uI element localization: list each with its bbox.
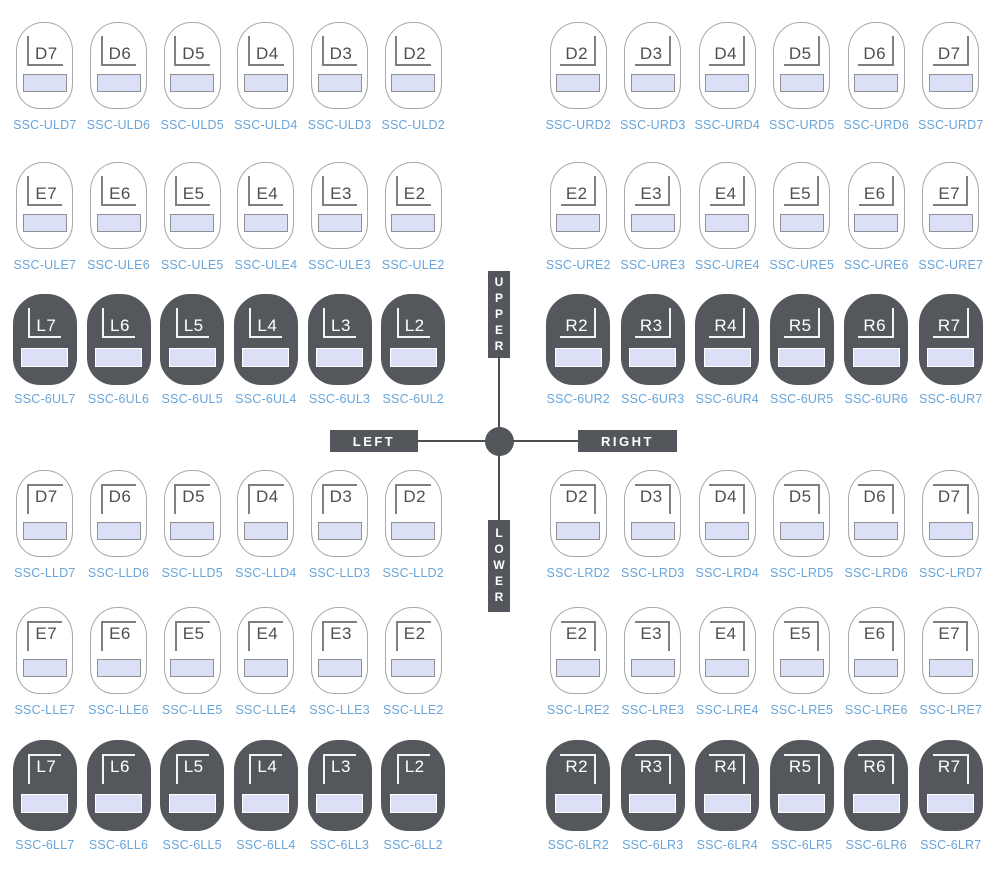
crown-band xyxy=(704,348,751,367)
product-code[interactable]: SSC-6UR6 xyxy=(845,392,908,406)
tooth-ssc-lre3[interactable]: E3 xyxy=(624,607,681,694)
product-code[interactable]: SSC-ULD6 xyxy=(87,118,150,132)
tooth-label: E6 xyxy=(101,621,136,651)
tooth-label: E5 xyxy=(784,621,819,651)
group-lower-right-6: R2SSC-6LR2R3SSC-6LR3R4SSC-6LR4R5SSC-6LR5… xyxy=(541,740,988,852)
tooth-label: D5 xyxy=(784,36,820,66)
tooth-cell: D5SSC-LRD5 xyxy=(765,470,840,580)
crown-band xyxy=(318,522,362,540)
tooth-ssc-6lr4[interactable]: R4 xyxy=(695,740,759,831)
crown-band xyxy=(629,348,676,367)
product-code[interactable]: SSC-ULD4 xyxy=(234,118,297,132)
product-code[interactable]: SSC-ULD5 xyxy=(160,118,223,132)
tooth-cell: D5SSC-URD5 xyxy=(765,22,840,132)
ssc-selection-chart: D7SSC-ULD7D6SSC-ULD6D5SSC-ULD5D4SSC-ULD4… xyxy=(0,0,1000,877)
product-code[interactable]: SSC-6UR3 xyxy=(621,392,684,406)
tooth-ssc-ure2[interactable]: E2 xyxy=(550,162,607,249)
product-code[interactable]: SSC-LLD2 xyxy=(383,566,444,580)
tooth-ssc-ule3[interactable]: E3 xyxy=(311,162,368,249)
axis-label-upper: UPPER xyxy=(488,271,510,358)
tooth-cell: E2SSC-LLE2 xyxy=(376,607,450,717)
crown-band xyxy=(780,214,824,232)
tooth-label: D6 xyxy=(858,36,894,66)
tooth-cell: D5SSC-ULD5 xyxy=(155,22,229,132)
crown-band xyxy=(556,74,600,92)
product-code[interactable]: SSC-LLD3 xyxy=(309,566,370,580)
tooth-cell: E2SSC-LRE2 xyxy=(541,607,616,717)
tooth-ssc-6lr7[interactable]: R7 xyxy=(919,740,983,831)
tooth-ssc-6ll5[interactable]: L5 xyxy=(160,740,224,831)
tooth-cell: E6SSC-ULE6 xyxy=(82,162,156,272)
tooth-cell: D7SSC-LRD7 xyxy=(914,470,989,580)
tooth-cell: R5SSC-6LR5 xyxy=(765,740,840,852)
product-code[interactable]: SSC-LRD2 xyxy=(547,566,610,580)
crown-band xyxy=(778,794,825,813)
tooth-ssc-lle4[interactable]: E4 xyxy=(237,607,294,694)
tooth-ssc-lle6[interactable]: E6 xyxy=(90,607,147,694)
tooth-cell: R2SSC-6LR2 xyxy=(541,740,616,852)
product-code[interactable]: SSC-LRE7 xyxy=(919,703,982,717)
tooth-label: D4 xyxy=(709,36,745,66)
product-code[interactable]: SSC-ULD3 xyxy=(308,118,371,132)
tooth-ssc-uld3[interactable]: D3 xyxy=(311,22,368,109)
tooth-ssc-lrd4[interactable]: D4 xyxy=(699,470,756,557)
axis-label-left: LEFT xyxy=(330,430,418,452)
tooth-cell: E4SSC-URE4 xyxy=(690,162,765,272)
tooth-cell: L5SSC-6LL5 xyxy=(155,740,229,852)
tooth-cell: D3SSC-LRD3 xyxy=(616,470,691,580)
tooth-ssc-6ll4[interactable]: L4 xyxy=(234,740,298,831)
tooth-cell: E6SSC-LLE6 xyxy=(82,607,156,717)
crown-band xyxy=(927,794,974,813)
tooth-ssc-uld2[interactable]: D2 xyxy=(385,22,442,109)
product-code[interactable]: SSC-6LL5 xyxy=(163,838,222,852)
tooth-cell: E5SSC-LRE5 xyxy=(765,607,840,717)
tooth-label: D5 xyxy=(784,484,820,514)
tooth-label: E2 xyxy=(561,621,596,651)
crown-band xyxy=(631,214,675,232)
product-code[interactable]: SSC-LRE6 xyxy=(845,703,908,717)
product-code[interactable]: SSC-ULE7 xyxy=(13,258,76,272)
product-code[interactable]: SSC-6LR2 xyxy=(548,838,609,852)
group-upper-left-6: L7SSC-6UL7L6SSC-6UL6L5SSC-6UL5L4SSC-6UL4… xyxy=(8,294,450,406)
crown-band xyxy=(23,659,67,677)
tooth-label: E3 xyxy=(322,621,357,651)
tooth-ssc-6ur3[interactable]: R3 xyxy=(621,294,685,385)
group-upper-left-e: E7SSC-ULE7E6SSC-ULE6E5SSC-ULE5E4SSC-ULE4… xyxy=(8,162,450,272)
product-code[interactable]: SSC-6LR3 xyxy=(622,838,683,852)
tooth-label: D7 xyxy=(27,484,63,514)
product-code[interactable]: SSC-LLE6 xyxy=(88,703,149,717)
tooth-ssc-uld5[interactable]: D5 xyxy=(164,22,221,109)
axis-line-right xyxy=(512,440,579,442)
product-code[interactable]: SSC-6UL4 xyxy=(235,392,296,406)
tooth-ssc-lrd5[interactable]: D5 xyxy=(773,470,830,557)
tooth-cell: D6SSC-ULD6 xyxy=(82,22,156,132)
crown-band xyxy=(316,348,363,367)
tooth-ssc-urd4[interactable]: D4 xyxy=(699,22,756,109)
crown-band xyxy=(629,794,676,813)
tooth-ssc-ure7[interactable]: E7 xyxy=(922,162,979,249)
product-code[interactable]: SSC-ULE3 xyxy=(308,258,371,272)
product-code[interactable]: SSC-ULD7 xyxy=(13,118,76,132)
product-code[interactable]: SSC-URD7 xyxy=(918,118,984,132)
crown-band xyxy=(95,794,142,813)
tooth-ssc-lld5[interactable]: D5 xyxy=(164,470,221,557)
product-code[interactable]: SSC-LLE4 xyxy=(236,703,297,717)
tooth-ssc-6ll3[interactable]: L3 xyxy=(308,740,372,831)
tooth-cell: D7SSC-LLD7 xyxy=(8,470,82,580)
tooth-ssc-ule6[interactable]: E6 xyxy=(90,162,147,249)
crown-band xyxy=(853,348,900,367)
crown-band xyxy=(23,522,67,540)
product-code[interactable]: SSC-LRE3 xyxy=(621,703,684,717)
product-code[interactable]: SSC-LLD7 xyxy=(14,566,75,580)
tooth-cell: L2SSC-6LL2 xyxy=(376,740,450,852)
product-code[interactable]: SSC-ULE5 xyxy=(161,258,224,272)
tooth-cell: D4SSC-LRD4 xyxy=(690,470,765,580)
tooth-ssc-6ul2[interactable]: L2 xyxy=(381,294,445,385)
tooth-label: E5 xyxy=(784,176,819,206)
tooth-cell: R4SSC-6UR4 xyxy=(690,294,765,406)
product-code[interactable]: SSC-URE7 xyxy=(918,258,983,272)
tooth-ssc-ure3[interactable]: E3 xyxy=(624,162,681,249)
tooth-ssc-lrd3[interactable]: D3 xyxy=(624,470,681,557)
tooth-label: D2 xyxy=(560,36,596,66)
tooth-ssc-6ll7[interactable]: L7 xyxy=(13,740,77,831)
product-code[interactable]: SSC-6UR4 xyxy=(696,392,759,406)
tooth-ssc-ule4[interactable]: E4 xyxy=(237,162,294,249)
tooth-cell: L7SSC-6LL7 xyxy=(8,740,82,852)
product-code[interactable]: SSC-LLD6 xyxy=(88,566,149,580)
tooth-label: E2 xyxy=(396,621,431,651)
tooth-ssc-ure6[interactable]: E6 xyxy=(848,162,905,249)
axis-label-right: RIGHT xyxy=(578,430,677,452)
crown-band xyxy=(778,348,825,367)
product-code[interactable]: SSC-6LL7 xyxy=(15,838,74,852)
tooth-label: R6 xyxy=(858,308,894,338)
product-code[interactable]: SSC-LRE2 xyxy=(547,703,610,717)
product-code[interactable]: SSC-LLE2 xyxy=(383,703,444,717)
tooth-ssc-6ul6[interactable]: L6 xyxy=(87,294,151,385)
tooth-ssc-lre6[interactable]: E6 xyxy=(848,607,905,694)
crown-band xyxy=(780,659,824,677)
axis-line-lower xyxy=(498,454,500,521)
tooth-ssc-lld7[interactable]: D7 xyxy=(16,470,73,557)
crown-band xyxy=(391,522,435,540)
tooth-ssc-urd2[interactable]: D2 xyxy=(550,22,607,109)
tooth-ssc-lld6[interactable]: D6 xyxy=(90,470,147,557)
product-code[interactable]: SSC-URD3 xyxy=(620,118,686,132)
product-code[interactable]: SSC-LLD4 xyxy=(235,566,296,580)
tooth-label: R6 xyxy=(858,754,894,784)
product-code[interactable]: SSC-LRD4 xyxy=(696,566,759,580)
group-lower-right-e: E2SSC-LRE2E3SSC-LRE3E4SSC-LRE4E5SSC-LRE5… xyxy=(541,607,988,717)
tooth-ssc-ule7[interactable]: E7 xyxy=(16,162,73,249)
crown-band xyxy=(95,348,142,367)
crown-band xyxy=(21,348,68,367)
product-code[interactable]: SSC-LRE5 xyxy=(770,703,833,717)
crown-band xyxy=(169,794,216,813)
tooth-ssc-6lr6[interactable]: R6 xyxy=(844,740,908,831)
tooth-ssc-lle5[interactable]: E5 xyxy=(164,607,221,694)
product-code[interactable]: SSC-LRD3 xyxy=(621,566,684,580)
tooth-ssc-ule2[interactable]: E2 xyxy=(385,162,442,249)
tooth-cell: R7SSC-6UR7 xyxy=(914,294,989,406)
group-lower-left-6: L7SSC-6LL7L6SSC-6LL6L5SSC-6LL5L4SSC-6LL4… xyxy=(8,740,450,852)
tooth-ssc-lld4[interactable]: D4 xyxy=(237,470,294,557)
crown-band xyxy=(97,522,141,540)
tooth-ssc-6ul7[interactable]: L7 xyxy=(13,294,77,385)
tooth-label: D4 xyxy=(709,484,745,514)
product-code[interactable]: SSC-URD2 xyxy=(546,118,612,132)
tooth-label: L4 xyxy=(249,308,282,338)
tooth-label: L2 xyxy=(397,754,430,784)
tooth-label: D7 xyxy=(933,484,969,514)
tooth-ssc-lld2[interactable]: D2 xyxy=(385,470,442,557)
tooth-cell: D6SSC-URD6 xyxy=(839,22,914,132)
tooth-cell: R6SSC-6LR6 xyxy=(839,740,914,852)
tooth-ssc-lre2[interactable]: E2 xyxy=(550,607,607,694)
tooth-ssc-6ul5[interactable]: L5 xyxy=(160,294,224,385)
product-code[interactable]: SSC-6UL3 xyxy=(309,392,370,406)
tooth-ssc-6ur6[interactable]: R6 xyxy=(844,294,908,385)
tooth-ssc-urd7[interactable]: D7 xyxy=(922,22,979,109)
tooth-label: R7 xyxy=(933,308,969,338)
tooth-label: D3 xyxy=(635,36,671,66)
tooth-ssc-lrd6[interactable]: D6 xyxy=(848,470,905,557)
crown-band xyxy=(242,348,289,367)
product-code[interactable]: SSC-LLE5 xyxy=(162,703,223,717)
product-code[interactable]: SSC-6LL2 xyxy=(384,838,443,852)
tooth-cell: L3SSC-6LL3 xyxy=(303,740,377,852)
tooth-label: D6 xyxy=(101,484,137,514)
tooth-label: E5 xyxy=(175,621,210,651)
tooth-ssc-6ur7[interactable]: R7 xyxy=(919,294,983,385)
tooth-cell: R4SSC-6LR4 xyxy=(690,740,765,852)
tooth-ssc-ure4[interactable]: E4 xyxy=(699,162,756,249)
tooth-ssc-6lr5[interactable]: R5 xyxy=(770,740,834,831)
tooth-label: R5 xyxy=(784,754,820,784)
group-lower-left-e: E7SSC-LLE7E6SSC-LLE6E5SSC-LLE5E4SSC-LLE4… xyxy=(8,607,450,717)
tooth-cell: E3SSC-URE3 xyxy=(616,162,691,272)
tooth-label: R2 xyxy=(560,754,596,784)
tooth-ssc-lle7[interactable]: E7 xyxy=(16,607,73,694)
tooth-cell: E5SSC-ULE5 xyxy=(155,162,229,272)
crown-band xyxy=(318,659,362,677)
tooth-label: E3 xyxy=(635,176,670,206)
tooth-label: D3 xyxy=(322,484,358,514)
tooth-cell: E4SSC-LRE4 xyxy=(690,607,765,717)
crown-band xyxy=(705,74,749,92)
tooth-cell: D7SSC-ULD7 xyxy=(8,22,82,132)
tooth-cell: L6SSC-6UL6 xyxy=(82,294,156,406)
product-code[interactable]: SSC-URE2 xyxy=(546,258,611,272)
product-code[interactable]: SSC-URD5 xyxy=(769,118,835,132)
tooth-ssc-6ur2[interactable]: R2 xyxy=(546,294,610,385)
crown-band xyxy=(23,214,67,232)
product-code[interactable]: SSC-URE5 xyxy=(769,258,834,272)
product-code[interactable]: SSC-URD4 xyxy=(695,118,761,132)
tooth-cell: D4SSC-LLD4 xyxy=(229,470,303,580)
group-upper-left-d: D7SSC-ULD7D6SSC-ULD6D5SSC-ULD5D4SSC-ULD4… xyxy=(8,22,450,132)
crown-band xyxy=(391,74,435,92)
tooth-label: L3 xyxy=(323,308,356,338)
tooth-cell: D4SSC-ULD4 xyxy=(229,22,303,132)
tooth-ssc-uld6[interactable]: D6 xyxy=(90,22,147,109)
tooth-cell: E3SSC-ULE3 xyxy=(303,162,377,272)
tooth-ssc-urd5[interactable]: D5 xyxy=(773,22,830,109)
product-code[interactable]: SSC-LRD6 xyxy=(845,566,908,580)
tooth-ssc-6ur5[interactable]: R5 xyxy=(770,294,834,385)
product-code[interactable]: SSC-6LL4 xyxy=(236,838,295,852)
axis-center-dot xyxy=(485,427,514,456)
product-code[interactable]: SSC-URE3 xyxy=(620,258,685,272)
product-code[interactable]: SSC-6LL6 xyxy=(89,838,148,852)
tooth-ssc-lre7[interactable]: E7 xyxy=(922,607,979,694)
tooth-ssc-urd6[interactable]: D6 xyxy=(848,22,905,109)
tooth-cell: D2SSC-LLD2 xyxy=(376,470,450,580)
tooth-ssc-lre5[interactable]: E5 xyxy=(773,607,830,694)
tooth-label: R3 xyxy=(635,308,671,338)
tooth-ssc-urd3[interactable]: D3 xyxy=(624,22,681,109)
crown-band xyxy=(318,74,362,92)
crown-band xyxy=(555,348,602,367)
crown-band xyxy=(390,794,437,813)
tooth-label: D2 xyxy=(395,484,431,514)
tooth-label: D5 xyxy=(174,484,210,514)
product-code[interactable]: SSC-URE4 xyxy=(695,258,760,272)
crown-band xyxy=(555,794,602,813)
tooth-ssc-uld7[interactable]: D7 xyxy=(16,22,73,109)
tooth-ssc-lre4[interactable]: E4 xyxy=(699,607,756,694)
tooth-cell: E7SSC-URE7 xyxy=(914,162,989,272)
product-code[interactable]: SSC-6LR7 xyxy=(920,838,981,852)
tooth-ssc-6ll2[interactable]: L2 xyxy=(381,740,445,831)
crown-band xyxy=(21,794,68,813)
crown-band xyxy=(97,74,141,92)
product-code[interactable]: SSC-ULD2 xyxy=(381,118,444,132)
tooth-ssc-lrd7[interactable]: D7 xyxy=(922,470,979,557)
crown-band xyxy=(170,522,214,540)
crown-band xyxy=(631,522,675,540)
tooth-ssc-lle3[interactable]: E3 xyxy=(311,607,368,694)
tooth-ssc-6ul3[interactable]: L3 xyxy=(308,294,372,385)
tooth-ssc-6ll6[interactable]: L6 xyxy=(87,740,151,831)
tooth-cell: E5SSC-LLE5 xyxy=(155,607,229,717)
product-code[interactable]: SSC-6LR4 xyxy=(697,838,758,852)
product-code[interactable]: SSC-LRD5 xyxy=(770,566,833,580)
crown-band xyxy=(929,214,973,232)
tooth-label: E4 xyxy=(710,621,745,651)
crown-band xyxy=(242,794,289,813)
tooth-label: E2 xyxy=(561,176,596,206)
tooth-cell: D6SSC-LLD6 xyxy=(82,470,156,580)
tooth-label: E3 xyxy=(322,176,357,206)
product-code[interactable]: SSC-6LL3 xyxy=(310,838,369,852)
product-code[interactable]: SSC-6LR5 xyxy=(771,838,832,852)
tooth-ssc-6ul4[interactable]: L4 xyxy=(234,294,298,385)
product-code[interactable]: SSC-6UL7 xyxy=(14,392,75,406)
group-lower-left-d: D7SSC-LLD7D6SSC-LLD6D5SSC-LLD5D4SSC-LLD4… xyxy=(8,470,450,580)
product-code[interactable]: SSC-LLE7 xyxy=(15,703,76,717)
tooth-cell: D5SSC-LLD5 xyxy=(155,470,229,580)
crown-band xyxy=(244,214,288,232)
product-code[interactable]: SSC-6UR7 xyxy=(919,392,982,406)
tooth-ssc-ule5[interactable]: E5 xyxy=(164,162,221,249)
tooth-ssc-lld3[interactable]: D3 xyxy=(311,470,368,557)
crown-band xyxy=(390,348,437,367)
tooth-label: D6 xyxy=(858,484,894,514)
tooth-ssc-6lr3[interactable]: R3 xyxy=(621,740,685,831)
product-code[interactable]: SSC-6UL5 xyxy=(162,392,223,406)
product-code[interactable]: SSC-LRE4 xyxy=(696,703,759,717)
product-code[interactable]: SSC-URE6 xyxy=(844,258,909,272)
tooth-label: L6 xyxy=(102,754,135,784)
product-code[interactable]: SSC-LLE3 xyxy=(309,703,370,717)
tooth-ssc-ure5[interactable]: E5 xyxy=(773,162,830,249)
tooth-cell: R5SSC-6UR5 xyxy=(765,294,840,406)
crown-band xyxy=(244,659,288,677)
tooth-label: R5 xyxy=(784,308,820,338)
crown-band xyxy=(705,214,749,232)
tooth-ssc-lrd2[interactable]: D2 xyxy=(550,470,607,557)
tooth-cell: L7SSC-6UL7 xyxy=(8,294,82,406)
tooth-ssc-6ur4[interactable]: R4 xyxy=(695,294,759,385)
tooth-label: E6 xyxy=(859,176,894,206)
tooth-label: E3 xyxy=(635,621,670,651)
crown-band xyxy=(556,214,600,232)
product-code[interactable]: SSC-URD6 xyxy=(844,118,910,132)
product-code[interactable]: SSC-ULE4 xyxy=(234,258,297,272)
product-code[interactable]: SSC-6UR2 xyxy=(547,392,610,406)
tooth-label: L7 xyxy=(28,308,61,338)
tooth-label: D2 xyxy=(395,36,431,66)
tooth-cell: L4SSC-6UL4 xyxy=(229,294,303,406)
product-code[interactable]: SSC-LLD5 xyxy=(162,566,223,580)
crown-band xyxy=(705,659,749,677)
tooth-cell: L5SSC-6UL5 xyxy=(155,294,229,406)
tooth-label: L6 xyxy=(102,308,135,338)
tooth-ssc-6lr2[interactable]: R2 xyxy=(546,740,610,831)
crown-band xyxy=(705,522,749,540)
product-code[interactable]: SSC-6UL6 xyxy=(88,392,149,406)
tooth-ssc-uld4[interactable]: D4 xyxy=(237,22,294,109)
tooth-label: D6 xyxy=(101,36,137,66)
axis-line-left xyxy=(417,440,486,442)
tooth-label: D2 xyxy=(560,484,596,514)
crown-band xyxy=(97,214,141,232)
product-code[interactable]: SSC-ULE2 xyxy=(382,258,445,272)
crown-band xyxy=(97,659,141,677)
product-code[interactable]: SSC-LRD7 xyxy=(919,566,982,580)
crown-band xyxy=(244,522,288,540)
tooth-label: E6 xyxy=(101,176,136,206)
product-code[interactable]: SSC-6LR6 xyxy=(846,838,907,852)
crown-band xyxy=(854,74,898,92)
tooth-cell: R7SSC-6LR7 xyxy=(914,740,989,852)
tooth-cell: E6SSC-URE6 xyxy=(839,162,914,272)
tooth-ssc-lle2[interactable]: E2 xyxy=(385,607,442,694)
crown-band xyxy=(391,659,435,677)
product-code[interactable]: SSC-6UL2 xyxy=(383,392,444,406)
group-upper-right-6: R2SSC-6UR2R3SSC-6UR3R4SSC-6UR4R5SSC-6UR5… xyxy=(541,294,988,406)
tooth-label: E4 xyxy=(710,176,745,206)
crown-band xyxy=(244,74,288,92)
tooth-label: L3 xyxy=(323,754,356,784)
product-code[interactable]: SSC-6UR5 xyxy=(770,392,833,406)
product-code[interactable]: SSC-ULE6 xyxy=(87,258,150,272)
